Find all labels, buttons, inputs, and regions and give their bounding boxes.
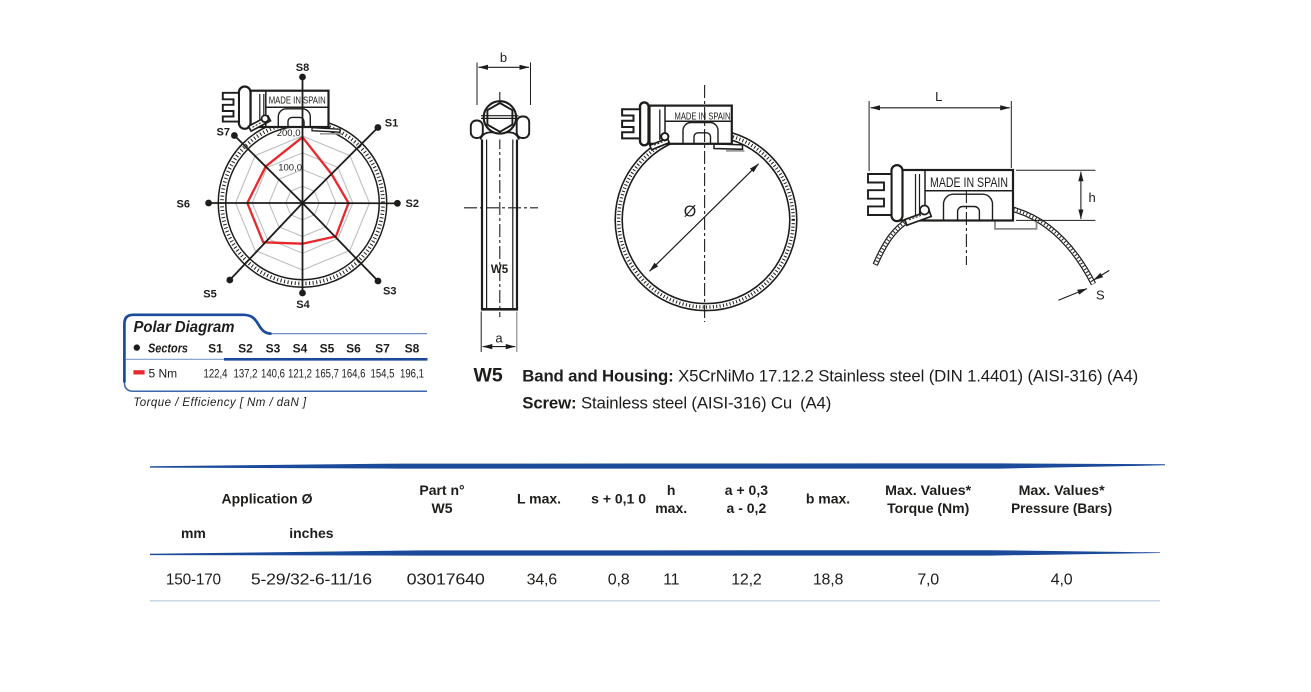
svg-text:122,4: 122,4 — [204, 367, 228, 381]
svg-text:b max.: b max. — [806, 491, 850, 507]
svg-text:L: L — [935, 89, 942, 104]
svg-text:S8: S8 — [296, 62, 309, 74]
svg-text:S3: S3 — [383, 286, 396, 298]
svg-text:Torque (Nm): Torque (Nm) — [887, 500, 969, 516]
svg-text:S7: S7 — [217, 127, 230, 139]
svg-text:200,0: 200,0 — [277, 128, 301, 139]
svg-text:154,5: 154,5 — [371, 367, 395, 381]
svg-text:S5: S5 — [203, 289, 216, 301]
svg-text:Part n°: Part n° — [419, 482, 464, 498]
svg-text:7,0: 7,0 — [917, 572, 939, 589]
svg-text:18,8: 18,8 — [813, 572, 844, 589]
svg-text:W5: W5 — [474, 365, 503, 387]
svg-text:5-29/32-6-11/16: 5-29/32-6-11/16 — [251, 572, 372, 589]
svg-text:100,0: 100,0 — [278, 163, 302, 174]
svg-text:03017640: 03017640 — [407, 572, 485, 589]
svg-text:0,8: 0,8 — [608, 572, 630, 589]
svg-text:W5: W5 — [432, 500, 453, 516]
svg-text:Max. Values*: Max. Values* — [1019, 482, 1106, 498]
svg-text:Band and Housing: X5CrNiMo 17.: Band and Housing: X5CrNiMo 17.12.2 Stain… — [522, 367, 1138, 386]
svg-text:S6: S6 — [346, 342, 361, 356]
svg-text:MADE IN SPAIN: MADE IN SPAIN — [675, 111, 731, 123]
svg-text:Sectors: Sectors — [148, 342, 188, 356]
svg-text:max.: max. — [655, 500, 687, 516]
svg-text:164,6: 164,6 — [342, 367, 366, 381]
svg-text:S1: S1 — [385, 118, 398, 130]
svg-text:a - 0,2: a - 0,2 — [727, 500, 767, 516]
svg-text:137,2: 137,2 — [234, 367, 258, 381]
svg-text:140,6: 140,6 — [261, 367, 285, 381]
svg-text:34,6: 34,6 — [527, 572, 558, 589]
svg-text:S3: S3 — [266, 342, 281, 356]
svg-text:S4: S4 — [296, 299, 310, 311]
svg-text:Torque / Efficiency [ Nm / daN: Torque / Efficiency [ Nm / daN ] — [133, 397, 306, 409]
svg-text:150-170: 150-170 — [166, 572, 221, 589]
svg-text:S2: S2 — [406, 198, 419, 210]
svg-text:b: b — [500, 50, 507, 65]
svg-text:S5: S5 — [320, 342, 335, 356]
svg-text:121,2: 121,2 — [288, 367, 312, 381]
svg-text:s + 0,1 0: s + 0,1 0 — [591, 491, 646, 507]
svg-text:Screw: Stainless steel (AISI-3: Screw: Stainless steel (AISI-316) Cu(A4) — [522, 394, 831, 413]
svg-text:h: h — [667, 482, 676, 498]
svg-text:S2: S2 — [238, 342, 253, 356]
svg-text:a + 0,3: a + 0,3 — [725, 482, 768, 498]
svg-text:S8: S8 — [405, 342, 420, 356]
svg-text:mm: mm — [181, 525, 206, 541]
svg-text:a: a — [495, 331, 503, 346]
svg-text:196,1: 196,1 — [400, 367, 424, 381]
svg-text:S: S — [1096, 288, 1105, 303]
svg-text:S4: S4 — [293, 342, 308, 356]
svg-text:5 Nm: 5 Nm — [149, 367, 178, 381]
svg-text:165,7: 165,7 — [315, 367, 339, 381]
svg-text:inches: inches — [289, 525, 334, 541]
svg-text:S1: S1 — [208, 342, 223, 356]
svg-text:12,2: 12,2 — [731, 572, 762, 589]
svg-text:MADE IN SPAIN: MADE IN SPAIN — [930, 174, 1008, 190]
svg-text:L max.: L max. — [517, 491, 561, 507]
svg-text:W5: W5 — [491, 264, 509, 276]
svg-text:Application Ø: Application Ø — [222, 491, 313, 507]
svg-text:Max. Values*: Max. Values* — [885, 482, 972, 498]
svg-text:Polar Diagram: Polar Diagram — [134, 319, 235, 336]
svg-text:MADE IN SPAIN: MADE IN SPAIN — [269, 96, 326, 107]
svg-text:S7: S7 — [375, 342, 390, 356]
svg-text:11: 11 — [663, 572, 680, 589]
svg-text:4,0: 4,0 — [1051, 572, 1073, 589]
svg-text:Ø: Ø — [684, 204, 696, 221]
svg-text:Pressure (Bars): Pressure (Bars) — [1011, 500, 1112, 516]
svg-text:S6: S6 — [177, 199, 190, 211]
svg-text:h: h — [1089, 190, 1096, 205]
